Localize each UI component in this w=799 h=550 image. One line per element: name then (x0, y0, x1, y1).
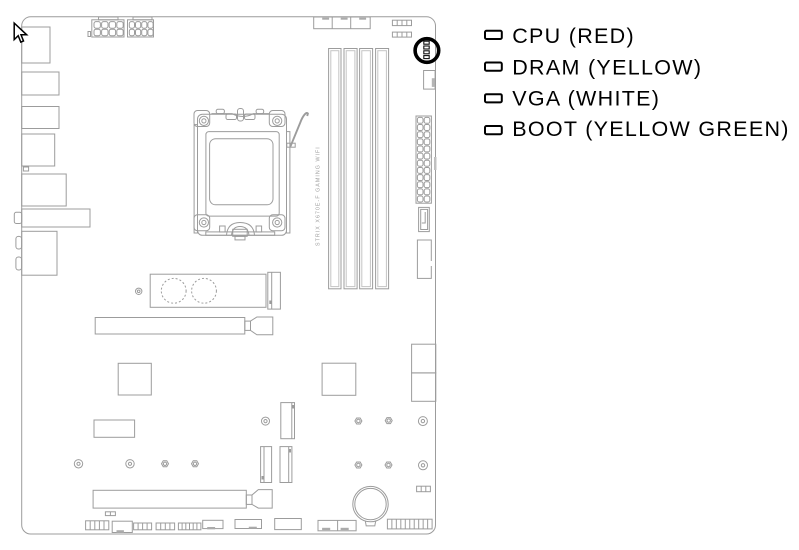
svg-text:STRIX X670E-F GAMING WIFI: STRIX X670E-F GAMING WIFI (316, 146, 322, 246)
svg-text:CPU (RED): CPU (RED) (512, 24, 635, 48)
svg-text:DRAM (YELLOW): DRAM (YELLOW) (512, 56, 702, 80)
svg-text:VGA (WHITE): VGA (WHITE) (512, 87, 660, 111)
svg-text:BOOT (YELLOW GREEN): BOOT (YELLOW GREEN) (512, 117, 790, 141)
